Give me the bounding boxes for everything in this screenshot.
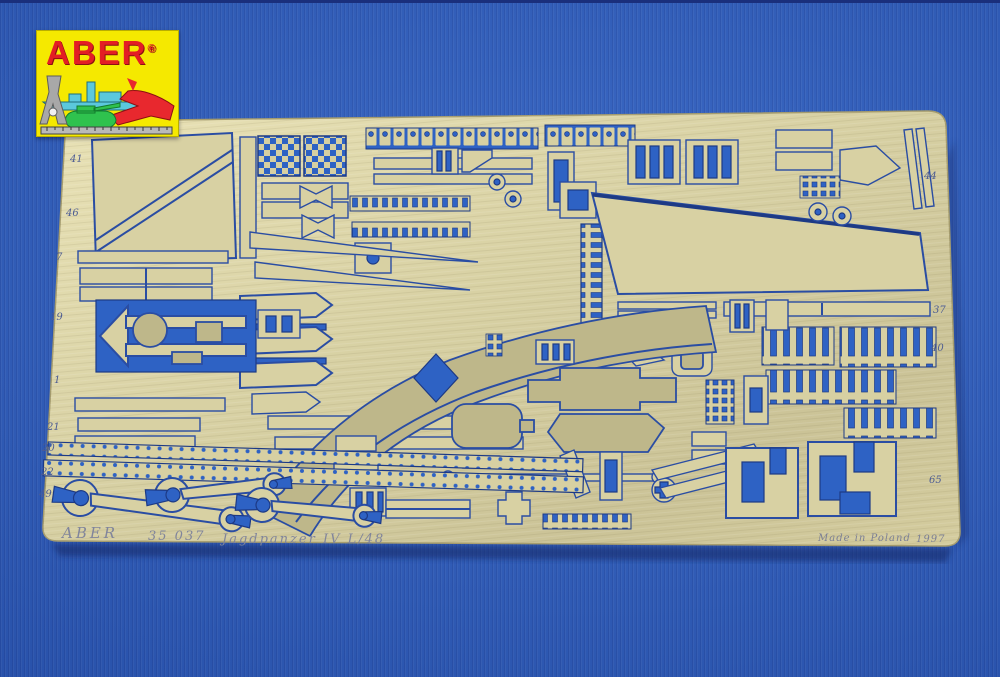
top-left-hull-panels xyxy=(92,133,256,262)
aber-logo: ABER® xyxy=(36,30,179,137)
hinge-strip-row xyxy=(366,125,635,149)
marking-subject: Jagdpanzer IV L/48 xyxy=(219,532,385,547)
part-number: 20 xyxy=(41,443,55,454)
part-number: 49 xyxy=(38,489,52,500)
part-number: 7 xyxy=(56,252,63,263)
part-number: 65 xyxy=(929,475,942,486)
product-photo: 41 46 7 19 1 21 20 22 49 44 37 40 65 ABE… xyxy=(0,0,1000,677)
marking-manufacturer: ABER xyxy=(60,524,118,542)
part-number: 21 xyxy=(46,422,60,433)
caliper-icon xyxy=(40,76,67,124)
marking-year: 1997 xyxy=(916,534,945,545)
part-number: 19 xyxy=(50,312,63,323)
part-number: 1 xyxy=(54,375,60,386)
part-number: 37 xyxy=(933,305,946,316)
part-number: 46 xyxy=(65,208,79,219)
ruler-icon xyxy=(41,127,172,134)
brand-text: ABER xyxy=(46,34,148,71)
logo-artwork xyxy=(37,70,176,136)
aber-logo-wordmark: ABER® xyxy=(37,31,178,70)
marking-catalog-number: 35 037 xyxy=(148,529,206,544)
part-number: 40 xyxy=(930,343,944,354)
marking-origin: Made in Poland xyxy=(817,533,911,544)
registered-trademark: ® xyxy=(148,43,156,55)
fret-shadow xyxy=(52,544,952,562)
part-number: 41 xyxy=(69,154,83,165)
part-number: 44 xyxy=(923,171,937,182)
part-number: 22 xyxy=(40,467,54,478)
